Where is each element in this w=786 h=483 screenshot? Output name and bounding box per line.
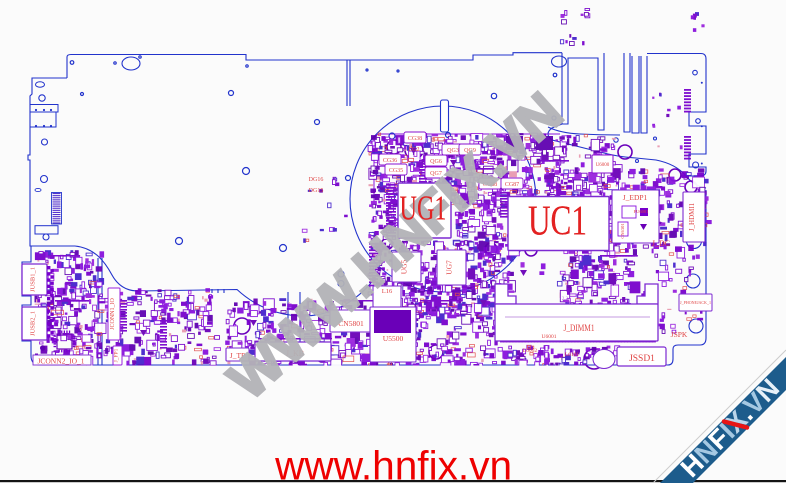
svg-text:CN6301: CN6301 — [620, 223, 625, 238]
svg-text:FU6001: FU6001 — [634, 209, 649, 214]
svg-text:JCONN2_IO_1: JCONN2_IO_1 — [37, 357, 84, 366]
svg-text:U5500: U5500 — [383, 334, 404, 343]
svg-text:UC1: UC1 — [528, 199, 587, 245]
svg-text:DG16: DG16 — [309, 177, 324, 183]
svg-text:UG1: UG1 — [400, 189, 447, 228]
svg-text:J_PHONEJACK_1: J_PHONEJACK_1 — [680, 300, 711, 305]
svg-text:JUSB1_1: JUSB1_1 — [30, 267, 37, 292]
svg-text:J_DIMM1: J_DIMM1 — [564, 323, 595, 333]
svg-text:JSSD1: JSSD1 — [629, 354, 655, 364]
svg-text:LG2: LG2 — [409, 147, 420, 153]
svg-text:JCONN1_IO: JCONN1_IO — [110, 298, 116, 330]
svg-text:JSPK: JSPK — [671, 330, 688, 339]
svg-text:J_HDMI1: J_HDMI1 — [688, 202, 696, 231]
svg-text:2 2: 2 2 — [562, 297, 569, 302]
svg-text:CG36: CG36 — [383, 158, 397, 164]
svg-text:L6101: L6101 — [565, 352, 580, 358]
svg-text:www.hnfix.vn: www.hnfix.vn — [274, 443, 512, 483]
svg-text:CG38: CG38 — [408, 136, 422, 142]
svg-text:L6002: L6002 — [523, 348, 538, 354]
svg-text:UG7: UG7 — [445, 260, 454, 275]
svg-text:CG35: CG35 — [389, 168, 403, 174]
svg-text:J_EDP1: J_EDP1 — [623, 193, 648, 202]
svg-text:DG15: DG15 — [309, 188, 324, 194]
svg-text:J_DC: J_DC — [652, 239, 670, 248]
svg-text:J_FP1: J_FP1 — [114, 348, 120, 362]
svg-text:U6000: U6000 — [596, 163, 610, 168]
svg-text:JUSB2_1: JUSB2_1 — [30, 311, 37, 336]
svg-text:U6001: U6001 — [542, 334, 557, 340]
